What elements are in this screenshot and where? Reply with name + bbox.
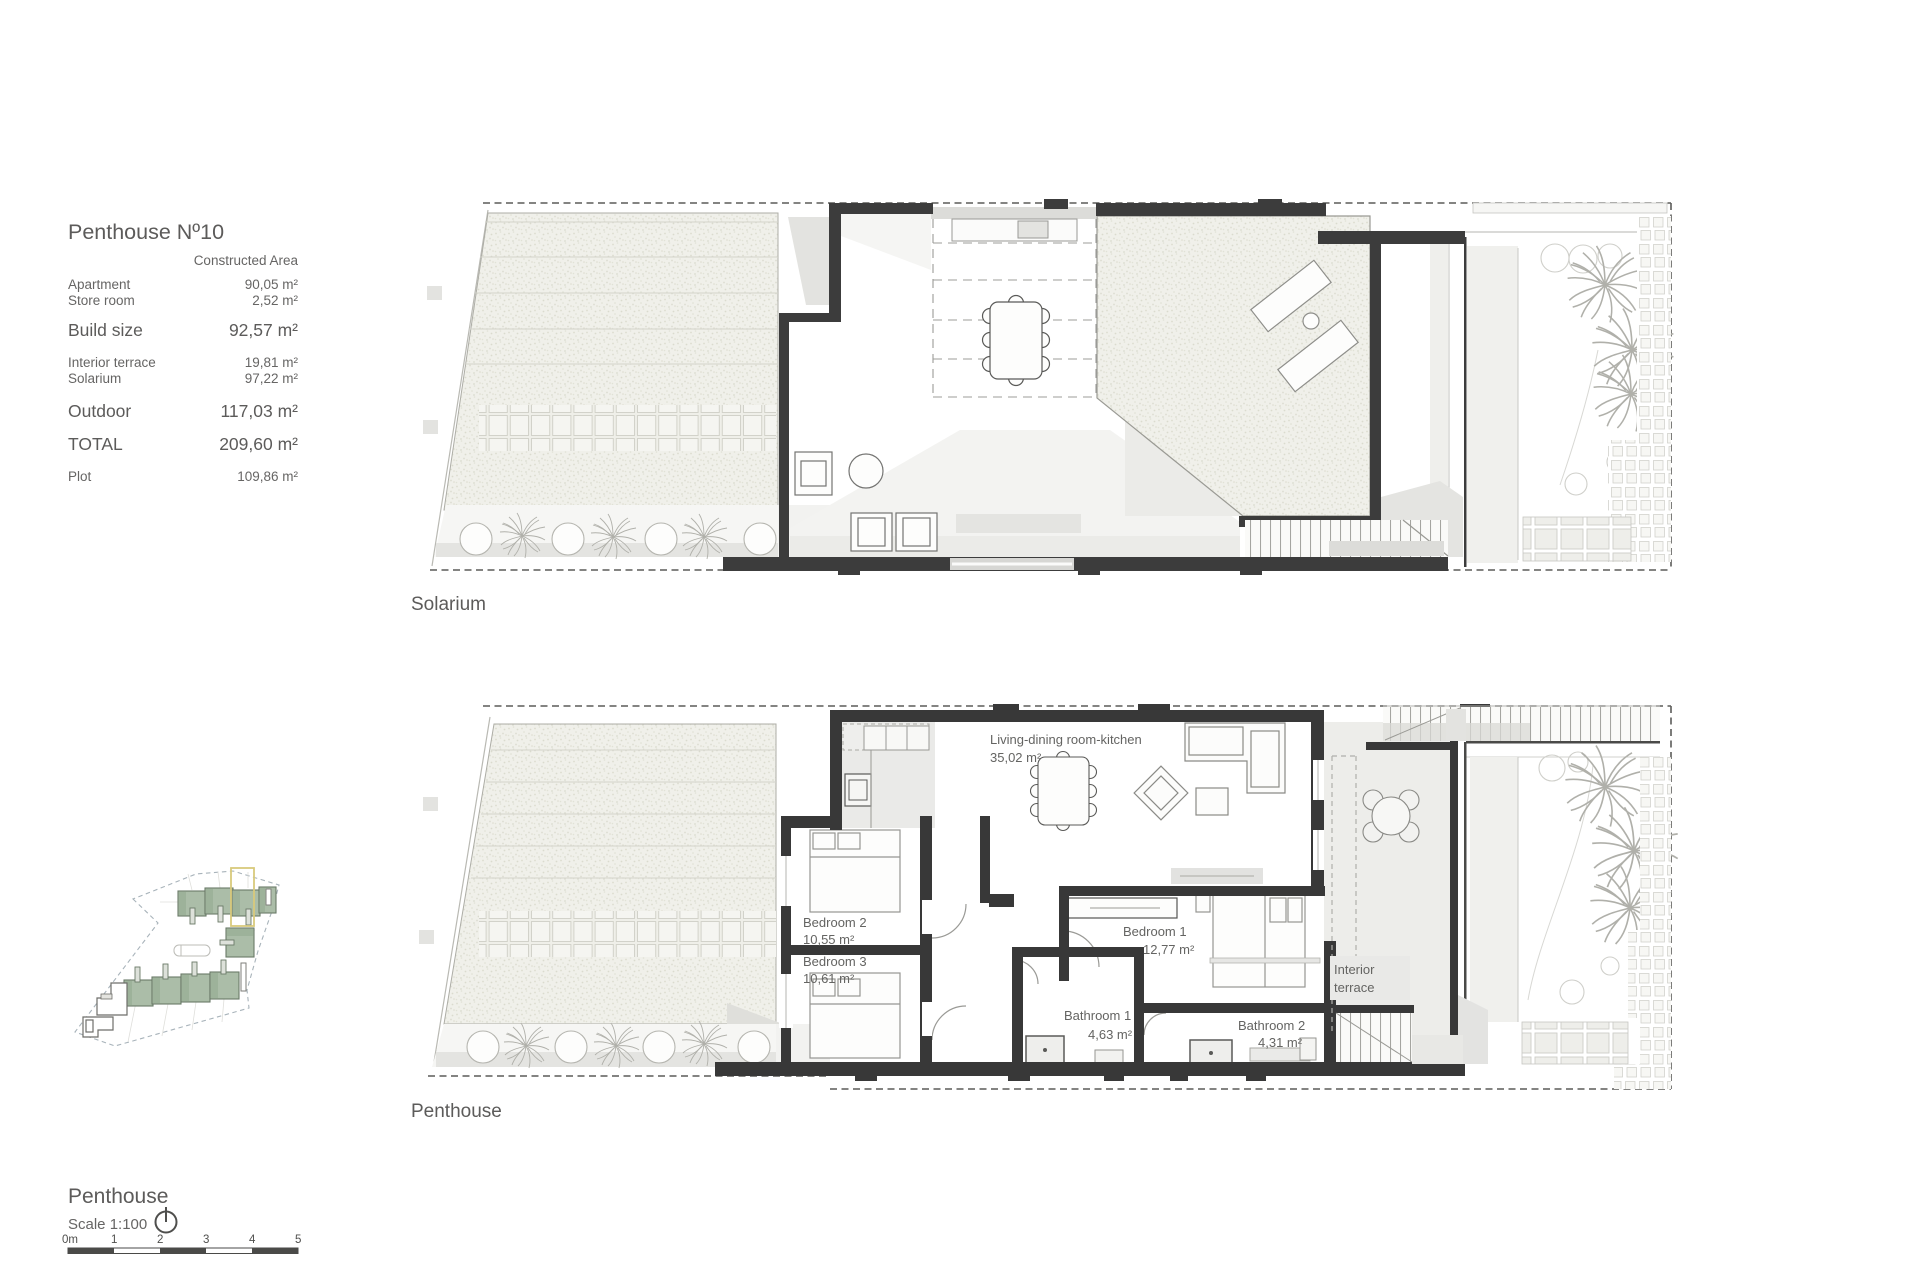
- svg-text:Plot: Plot: [68, 469, 92, 484]
- svg-text:Solarium: Solarium: [68, 371, 121, 386]
- svg-text:0m: 0m: [62, 1234, 78, 1246]
- svg-text:Penthouse: Penthouse: [68, 1185, 168, 1208]
- svg-text:10,61 m²: 10,61 m²: [803, 971, 855, 986]
- svg-text:1: 1: [111, 1234, 117, 1246]
- svg-text:209,60 m²: 209,60 m²: [219, 434, 298, 454]
- svg-text:117,03 m²: 117,03 m²: [221, 401, 299, 421]
- svg-text:109,86 m²: 109,86 m²: [237, 469, 298, 484]
- svg-text:Constructed Area: Constructed Area: [194, 253, 299, 268]
- svg-text:5: 5: [295, 1234, 301, 1246]
- svg-text:2,52 m²: 2,52 m²: [252, 293, 298, 308]
- svg-text:35,02 m²: 35,02 m²: [990, 750, 1042, 765]
- svg-text:Bedroom 2: Bedroom 2: [803, 915, 867, 930]
- svg-text:4,31 m²: 4,31 m²: [1258, 1035, 1303, 1050]
- svg-text:Solarium: Solarium: [411, 594, 486, 615]
- svg-text:Bathroom 1: Bathroom 1: [1064, 1008, 1131, 1023]
- svg-text:90,05 m²: 90,05 m²: [245, 277, 299, 292]
- svg-text:Penthouse: Penthouse: [411, 1101, 502, 1122]
- svg-text:4: 4: [249, 1234, 256, 1246]
- svg-text:2: 2: [157, 1234, 163, 1246]
- svg-text:3: 3: [203, 1234, 209, 1246]
- svg-text:terrace: terrace: [1334, 980, 1374, 995]
- svg-text:Bedroom 1: Bedroom 1: [1123, 924, 1187, 939]
- svg-text:Outdoor: Outdoor: [68, 401, 131, 421]
- svg-text:12,77 m²: 12,77 m²: [1143, 942, 1195, 957]
- svg-text:4,63 m²: 4,63 m²: [1088, 1027, 1133, 1042]
- svg-text:Store room: Store room: [68, 293, 135, 308]
- svg-text:Scale 1:100: Scale 1:100: [68, 1216, 147, 1233]
- svg-text:Bathroom 2: Bathroom 2: [1238, 1018, 1305, 1033]
- svg-text:19,81 m²: 19,81 m²: [245, 355, 299, 370]
- svg-text:Living-dining room-kitchen: Living-dining room-kitchen: [990, 732, 1142, 747]
- svg-text:Build size: Build size: [68, 320, 143, 340]
- svg-text:Penthouse Nº10: Penthouse Nº10: [68, 220, 224, 244]
- svg-text:97,22 m²: 97,22 m²: [245, 371, 299, 386]
- svg-text:Interior: Interior: [1334, 962, 1375, 977]
- svg-text:10,55 m²: 10,55 m²: [803, 932, 855, 947]
- svg-text:Apartment: Apartment: [68, 277, 131, 292]
- svg-text:Bedroom 3: Bedroom 3: [803, 954, 867, 969]
- svg-text:Interior terrace: Interior terrace: [68, 355, 156, 370]
- svg-text:TOTAL: TOTAL: [68, 434, 123, 454]
- svg-text:92,57 m²: 92,57 m²: [229, 320, 298, 340]
